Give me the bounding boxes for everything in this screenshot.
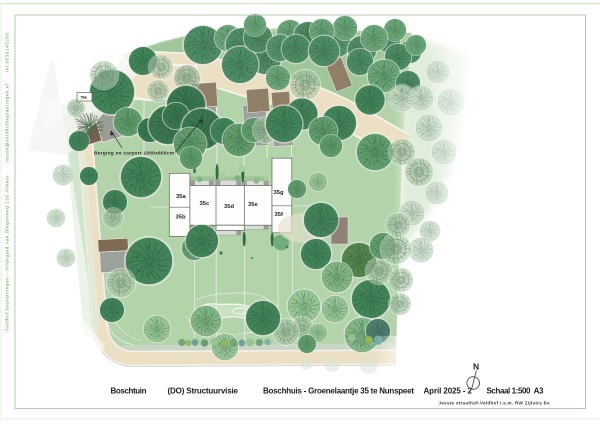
svg-text:Berging en carport 1000x600cm: Berging en carport 1000x600cm: [94, 151, 174, 157]
svg-text:Jessie straathof-Veldhof i.s.m: Jessie straathof-Veldhof i.s.m. RW Zijls…: [439, 401, 551, 406]
svg-text:35e: 35e: [248, 202, 258, 208]
svg-text:Boschtuin: Boschtuin: [111, 387, 147, 396]
svg-text:Boschhuis - Groenelaantje 35 t: Boschhuis - Groenelaantje 35 te Nunspeet: [263, 387, 414, 396]
svg-text:April 2025 - 2: April 2025 - 2: [424, 387, 473, 396]
svg-text:35c: 35c: [200, 201, 210, 207]
svg-text:35g: 35g: [274, 190, 284, 196]
svg-text:N: N: [473, 362, 479, 372]
svg-text:(DO) Structuurvisie: (DO) Structuurvisie: [168, 387, 239, 396]
svg-text:Schaal 1:500 A3: Schaal 1:500 A3: [487, 387, 545, 396]
svg-text:Veldhof beplantingen - Hildega: Veldhof beplantingen - Hildegard van Bin…: [5, 32, 10, 331]
svg-text:35d: 35d: [224, 204, 234, 210]
svg-text:35b: 35b: [176, 215, 186, 221]
svg-text:35a: 35a: [176, 194, 186, 200]
svg-text:35f: 35f: [275, 212, 283, 218]
svg-text:TH: TH: [81, 95, 88, 100]
